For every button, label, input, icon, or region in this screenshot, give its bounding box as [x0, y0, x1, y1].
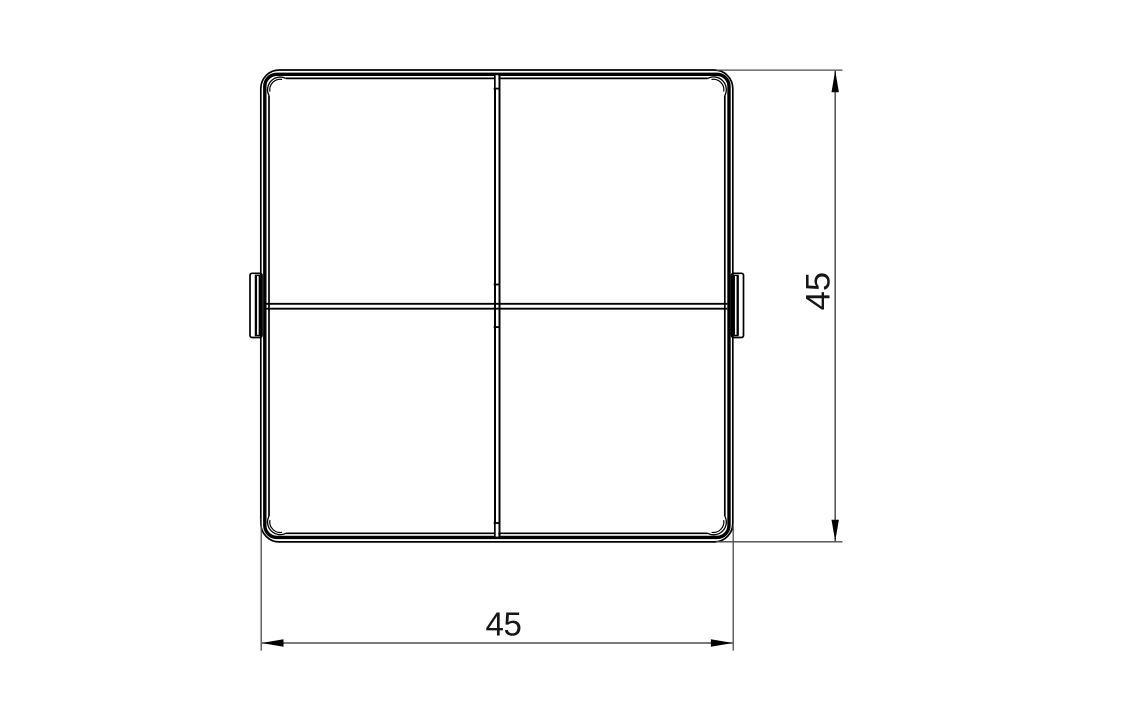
- svg-text:45: 45: [486, 606, 522, 643]
- svg-text:45: 45: [799, 272, 837, 310]
